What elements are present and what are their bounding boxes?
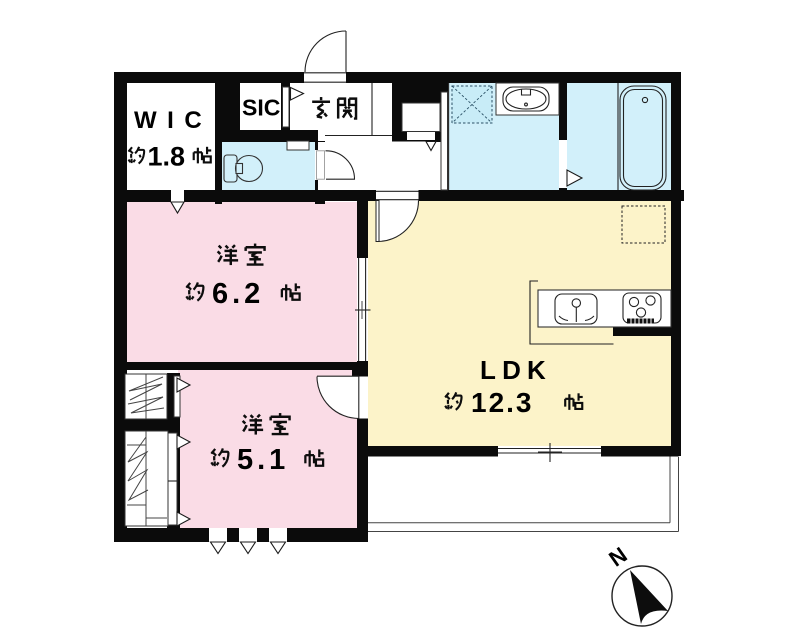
svg-text:WIC: WIC: [134, 107, 212, 134]
svg-text:12.3: 12.3: [471, 387, 534, 418]
svg-text:LDK: LDK: [480, 355, 552, 385]
svg-text:5.1: 5.1: [237, 444, 289, 476]
svg-text:1.8: 1.8: [148, 142, 186, 172]
svg-text:6.2: 6.2: [212, 278, 264, 310]
svg-text:SIC: SIC: [242, 95, 280, 121]
